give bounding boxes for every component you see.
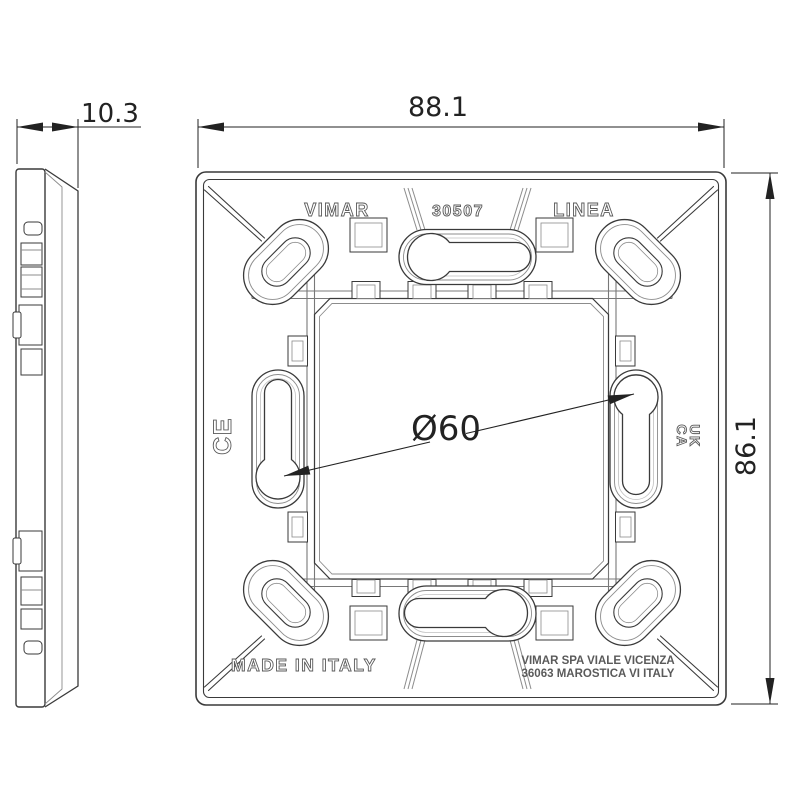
model-marking: 30507 [432,203,484,220]
side-view [13,169,78,707]
screw-slot-right [610,370,662,508]
dimension-height: 86.1 [731,173,778,704]
dimension-depth: 10.3 [17,99,141,188]
height-label: 86.1 [731,416,762,476]
depth-label: 10.3 [81,99,139,129]
technical-drawing: VIMAR 30507 LINEA CE UK CA MADE IN ITALY… [0,0,800,800]
ukca-mark-bottom: CA [674,424,690,447]
width-label: 88.1 [408,92,468,123]
screw-slot-left [252,370,304,508]
diameter-label: Ø60 [411,409,481,449]
screw-slot-bottom [399,586,536,641]
screw-slot-top [399,230,536,285]
ukca-mark: UK CA [674,424,703,447]
ce-mark: CE [209,417,237,455]
manufacturer-address-line1: VIMAR SPA VIALE VICENZA [521,655,674,667]
brand-marking: VIMAR [304,200,370,220]
side-view-clips-bottom [13,531,42,654]
dimension-width: 88.1 [198,92,724,168]
made-in-marking: MADE IN ITALY [231,655,377,675]
side-view-clips-top [13,222,42,375]
manufacturer-address-line2: 36063 MAROSTICA VI ITALY [522,668,675,680]
series-marking: LINEA [553,200,615,220]
drawing-svg: VIMAR 30507 LINEA CE UK CA MADE IN ITALY… [0,0,800,800]
